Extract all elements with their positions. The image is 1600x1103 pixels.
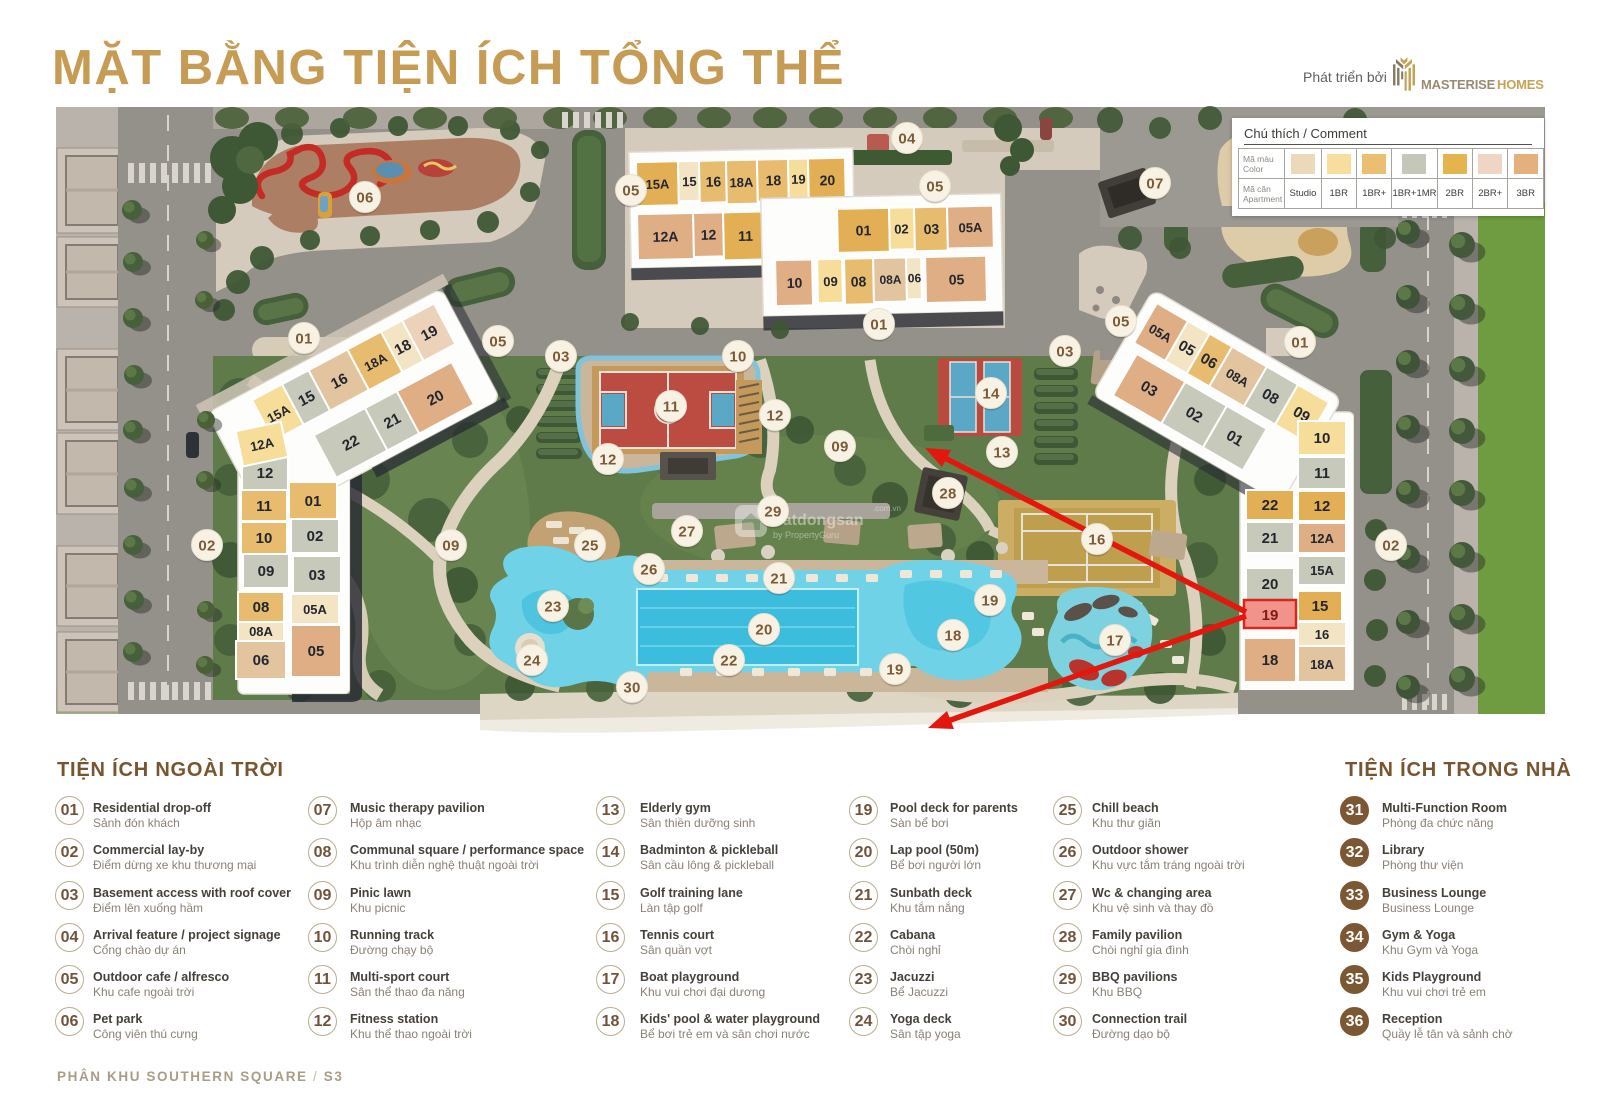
- svg-text:15A: 15A: [645, 176, 670, 192]
- svg-text:01: 01: [295, 331, 312, 348]
- svg-text:21: 21: [770, 571, 787, 588]
- svg-text:13: 13: [993, 445, 1010, 462]
- svg-text:01: 01: [1291, 335, 1308, 352]
- svg-text:06: 06: [253, 652, 270, 669]
- svg-text:11: 11: [1314, 465, 1330, 482]
- svg-text:08A: 08A: [249, 624, 273, 639]
- svg-text:15: 15: [682, 174, 697, 189]
- svg-text:03: 03: [1056, 344, 1073, 361]
- svg-text:05A: 05A: [958, 220, 983, 236]
- svg-text:23: 23: [544, 599, 561, 616]
- svg-text:28: 28: [939, 486, 956, 503]
- svg-text:27: 27: [678, 524, 695, 541]
- svg-text:03: 03: [309, 567, 326, 584]
- svg-text:17: 17: [1106, 633, 1123, 650]
- svg-text:05: 05: [949, 271, 965, 287]
- svg-text:02: 02: [894, 221, 909, 236]
- svg-text:20: 20: [755, 622, 772, 639]
- svg-text:05: 05: [308, 643, 325, 660]
- svg-text:18: 18: [1262, 652, 1279, 669]
- svg-text:18A: 18A: [729, 175, 754, 191]
- svg-text:12: 12: [1314, 498, 1331, 515]
- svg-text:14: 14: [982, 386, 1000, 403]
- svg-text:29: 29: [764, 504, 781, 521]
- svg-text:04: 04: [898, 131, 916, 148]
- svg-text:16: 16: [705, 173, 721, 189]
- svg-text:10: 10: [256, 530, 273, 547]
- svg-text:.com.vn: .com.vn: [873, 504, 901, 513]
- svg-text:05A: 05A: [303, 602, 327, 617]
- svg-text:09: 09: [823, 274, 838, 289]
- svg-text:25: 25: [581, 538, 598, 555]
- svg-text:10: 10: [729, 349, 746, 366]
- svg-text:16: 16: [1315, 627, 1329, 642]
- svg-text:18A: 18A: [1310, 657, 1334, 672]
- svg-text:12A: 12A: [653, 228, 679, 245]
- svg-text:15A: 15A: [1310, 563, 1334, 578]
- svg-text:15: 15: [1312, 598, 1329, 615]
- svg-text:08: 08: [851, 273, 867, 289]
- svg-text:16: 16: [1088, 532, 1105, 549]
- svg-text:09: 09: [258, 563, 275, 580]
- svg-text:18: 18: [765, 172, 781, 188]
- svg-text:18: 18: [944, 628, 961, 645]
- svg-text:01: 01: [870, 317, 887, 334]
- svg-text:02: 02: [1382, 538, 1399, 555]
- svg-text:19: 19: [1262, 607, 1279, 624]
- svg-text:08: 08: [253, 599, 270, 616]
- svg-text:05: 05: [1112, 314, 1129, 331]
- svg-text:12: 12: [701, 226, 717, 242]
- svg-text:20: 20: [1262, 576, 1279, 593]
- svg-text:06: 06: [908, 271, 922, 285]
- svg-text:20: 20: [819, 172, 835, 188]
- svg-text:12: 12: [766, 408, 783, 425]
- svg-text:06: 06: [356, 190, 373, 207]
- svg-text:by PropertyGuru: by PropertyGuru: [773, 530, 839, 540]
- svg-text:26: 26: [640, 562, 657, 579]
- svg-text:12: 12: [599, 452, 616, 469]
- svg-text:02: 02: [198, 538, 215, 555]
- svg-text:05: 05: [926, 179, 943, 196]
- svg-text:09: 09: [831, 439, 848, 456]
- svg-text:21: 21: [1262, 530, 1279, 547]
- svg-text:11: 11: [256, 498, 272, 515]
- svg-text:11: 11: [663, 399, 679, 416]
- svg-text:19: 19: [886, 662, 903, 679]
- svg-text:30: 30: [623, 680, 640, 697]
- svg-text:03: 03: [924, 221, 940, 237]
- svg-text:03: 03: [552, 349, 569, 366]
- svg-text:24: 24: [523, 653, 541, 670]
- svg-text:19: 19: [791, 172, 806, 187]
- svg-text:11: 11: [738, 228, 753, 244]
- svg-text:12A: 12A: [1310, 531, 1334, 546]
- svg-text:22: 22: [1262, 497, 1279, 514]
- svg-text:10: 10: [787, 275, 803, 291]
- svg-text:22: 22: [720, 653, 737, 670]
- svg-text:05: 05: [622, 183, 639, 200]
- svg-text:08A: 08A: [879, 273, 902, 287]
- svg-text:07: 07: [1146, 176, 1163, 193]
- svg-text:10: 10: [1314, 430, 1331, 447]
- svg-text:02: 02: [307, 528, 324, 545]
- svg-text:12: 12: [257, 465, 274, 482]
- svg-text:01: 01: [856, 222, 872, 238]
- svg-text:01: 01: [305, 493, 322, 510]
- svg-text:19: 19: [981, 593, 998, 610]
- svg-text:05: 05: [489, 334, 506, 351]
- svg-text:09: 09: [442, 538, 459, 555]
